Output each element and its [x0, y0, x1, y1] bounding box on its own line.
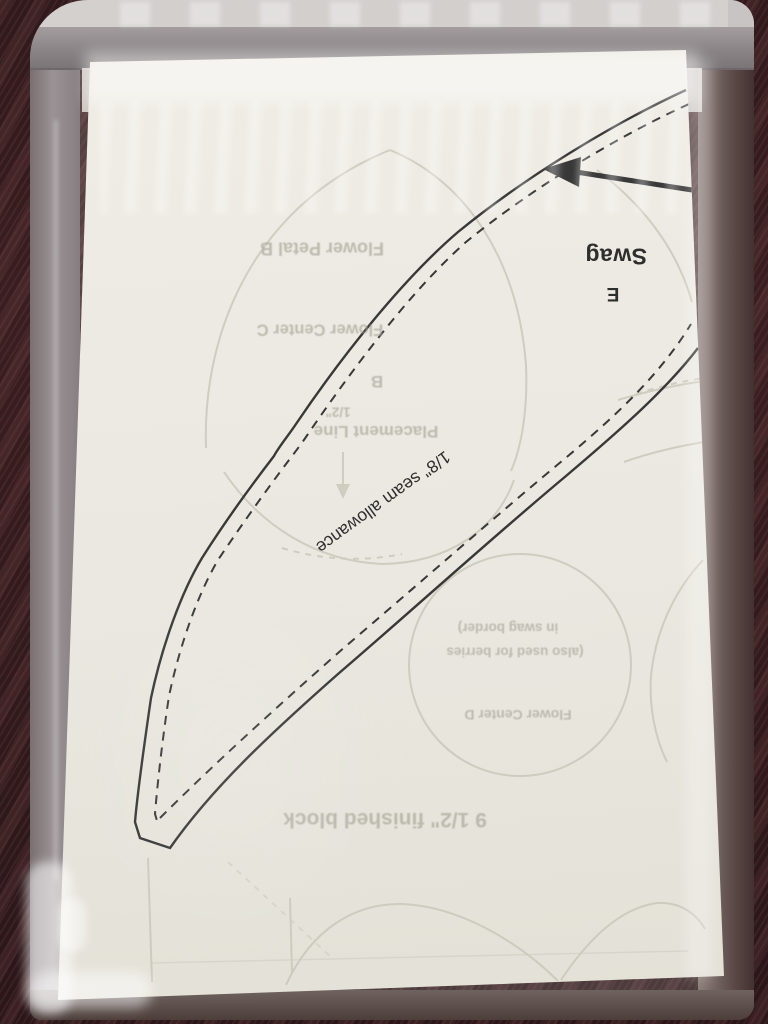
showthrough-berries-note-line1: (also used for berries — [446, 645, 583, 660]
swag-piece-label: Swag — [585, 243, 647, 270]
swag-piece-letter: E — [607, 282, 620, 304]
showthrough-bottom-dome-arc — [286, 904, 558, 985]
showthrough-shapes — [148, 150, 705, 985]
showthrough-flower-center-d-circle — [409, 554, 631, 776]
showthrough-flower-center-c-label: Flower Center C — [257, 320, 384, 339]
showthrough-right-arc-lower — [651, 560, 703, 762]
showthrough-placement-line-label: Placement Line — [314, 421, 439, 441]
showthrough-petal-left-arc — [206, 150, 390, 448]
bag-top-flap — [30, 0, 754, 27]
showthrough-letter-b: B — [371, 371, 383, 391]
showthrough-half-inch-label: 1/2" — [325, 405, 350, 420]
showthrough-horizontal-line — [152, 951, 688, 963]
swag-seam-dashed-lower — [160, 324, 691, 818]
arrow-shaft — [576, 172, 692, 190]
showthrough-right-line-2 — [624, 442, 704, 462]
showthrough-finished-block-label: 9 1/2" finished block — [283, 807, 487, 831]
showthrough-placement-arrow-head — [336, 484, 350, 499]
showthrough-flower-petal-label: Flower Petal B — [260, 238, 384, 259]
showthrough-fold-line-left — [148, 858, 152, 982]
showthrough-diagonal-dashed — [228, 862, 332, 958]
showthrough-bottom-right-arc — [561, 903, 705, 980]
showthrough-vertical-line — [290, 898, 292, 972]
showthrough-flower-center-d-label: Flower Center D — [464, 707, 571, 723]
photo-scene: Swag E 1/8" seam allowance Flower Petal … — [0, 0, 768, 1024]
showthrough-berries-note-line2: in swag border) — [458, 621, 559, 636]
